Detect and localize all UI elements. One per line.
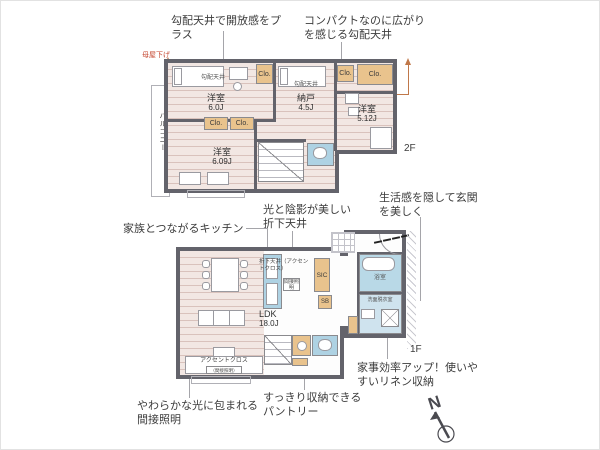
annotation-pantry: すっきり収納できるパントリー <box>263 391 367 419</box>
bed-pillow <box>174 68 182 85</box>
arrow-stem <box>408 64 409 95</box>
annotation-light-shadow-ceiling: 光と陰影が美しい折下天井 <box>263 203 357 231</box>
note-indirect-light-box: 間接照明 <box>283 278 300 291</box>
partition <box>273 63 276 121</box>
closet: Clo. <box>230 117 254 130</box>
futon <box>207 172 229 185</box>
desk <box>229 67 248 80</box>
closet: Clo. <box>256 64 273 84</box>
annotation-family-kitchen: 家族とつながるキッチン <box>123 222 244 236</box>
bay-window <box>191 376 251 384</box>
porch-tiles <box>331 232 355 253</box>
note-accent-sub: （間接照明） <box>206 366 242 374</box>
counter-divider <box>213 310 214 326</box>
chair <box>240 260 248 268</box>
kitchen-stove <box>266 283 278 305</box>
room-label-bath: 浴室 <box>374 275 386 282</box>
floor-label-1f: 1F <box>410 344 422 355</box>
floorplan-canvas: 勾配天井で開放感をプラス コンパクトなのに広がりを感じる勾配天井 母屋下げ 家族… <box>0 0 600 450</box>
dining-table <box>211 258 239 292</box>
bay-window <box>187 190 245 198</box>
chair <box>240 282 248 290</box>
staircase-1f <box>264 335 292 365</box>
accent-wall: アクセントクロス （間接照明） <box>185 356 263 374</box>
vanity <box>292 335 311 356</box>
pantry <box>292 358 308 366</box>
bed-pillow <box>280 68 288 85</box>
chair <box>240 271 248 279</box>
island-counter <box>198 310 245 326</box>
leader-line <box>246 228 268 229</box>
annotation-hide-entrance: 生活感を隠して玄関を美しく <box>379 191 485 219</box>
note-sloped-ceiling: 勾配天井 <box>201 75 225 82</box>
bed <box>370 127 392 149</box>
room-label-washroom: 洗面脱衣室 <box>367 297 392 304</box>
chair <box>202 260 210 268</box>
annotation-sloped-ceiling: 勾配天井で開放感をプラス <box>171 14 283 42</box>
chair <box>202 271 210 279</box>
closet: Clo. <box>337 65 354 82</box>
leader-line <box>420 217 421 301</box>
room-label-ldk: LDK 18.0J <box>259 309 279 328</box>
partition <box>254 119 257 189</box>
compass-n-label: N <box>426 392 444 414</box>
washbasin <box>361 309 375 319</box>
chair <box>233 82 242 91</box>
annotation-linen-storage: 家事効率アップ！使いやすいリネン収納 <box>357 361 483 389</box>
room-label-bedroom-60: 洋室 6.0J <box>207 93 225 112</box>
note-sloped-ceiling: 勾配天井 <box>294 82 318 89</box>
washbasin <box>345 93 359 104</box>
counter-divider <box>229 310 230 326</box>
compass: N <box>419 391 467 449</box>
note-kitchen-ceiling: 折下天井（アクセントクロス） <box>259 259 311 272</box>
washing-machine <box>381 309 399 327</box>
annotation-compact-sloped-ceiling: コンパクトなのに広がりを感じる勾配天井 <box>304 14 430 42</box>
shoe-in-closet: SIC <box>314 258 330 292</box>
leader-line <box>387 337 388 359</box>
floor-label-2f: 2F <box>404 143 416 154</box>
room-label-bedroom-512: 洋室 5.12J <box>357 104 377 123</box>
futon <box>179 172 201 185</box>
annotation-soft-light: やわらかな光に包まれる間接照明 <box>137 399 263 427</box>
closet: Clo. <box>204 117 228 130</box>
note-accent-cloth: アクセントクロス <box>186 357 262 365</box>
site-hatch <box>407 231 416 349</box>
room-label-storage-45: 納戸 4.5J <box>297 93 315 112</box>
bathtub <box>362 257 395 271</box>
toilet-icon <box>313 147 327 159</box>
toilet-icon <box>318 339 332 351</box>
room-label-bedroom-609: 洋室 6.09J <box>212 147 232 166</box>
linen-closet <box>348 316 358 334</box>
closet: Clo. <box>357 64 393 85</box>
shoe-box: SB <box>318 295 332 309</box>
staircase-2f <box>258 142 304 182</box>
chair <box>202 282 210 290</box>
